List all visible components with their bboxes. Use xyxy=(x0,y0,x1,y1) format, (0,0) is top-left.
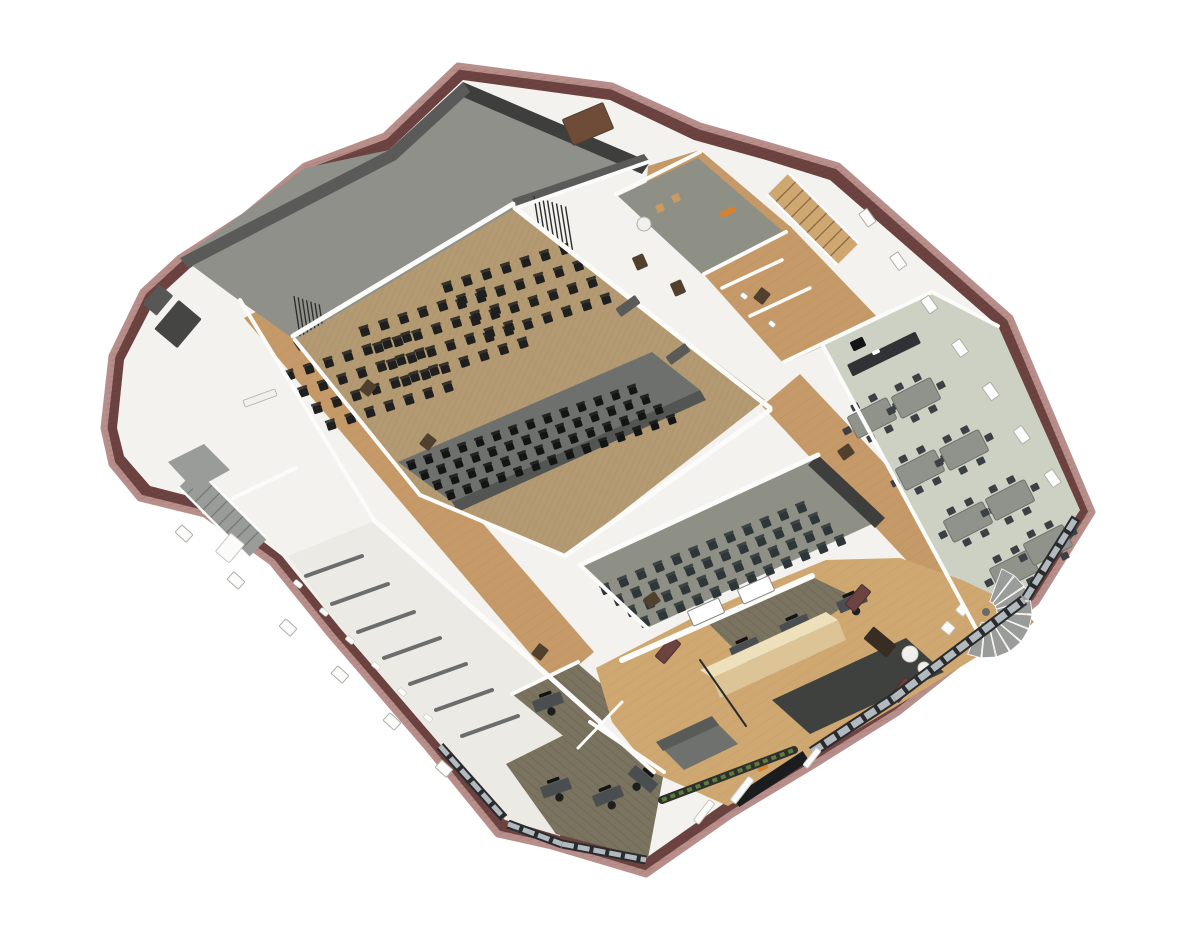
facade-window xyxy=(279,619,297,636)
floor-plan-render-viewport xyxy=(0,0,1200,941)
facade-window xyxy=(227,572,245,589)
lounge-round-table xyxy=(637,217,651,231)
lobby-round-table xyxy=(902,646,918,662)
building-3d-cutaway xyxy=(0,0,1200,941)
facade-window xyxy=(175,525,193,542)
facade-window xyxy=(331,666,349,683)
spiral-staircase-column xyxy=(982,608,990,616)
